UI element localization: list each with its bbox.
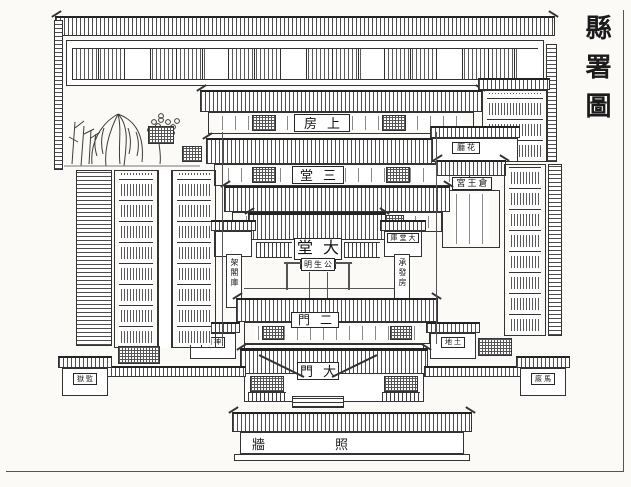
east-wing-outer-roof	[548, 164, 562, 336]
plaque-gongshengming-text: 明生公	[304, 261, 334, 269]
plaque-jail-text: 獄監	[77, 376, 95, 383]
plaque-east-shrine-text: 地土	[445, 339, 463, 346]
plaque-ermen-text: 門二	[298, 314, 342, 326]
damen-steps	[292, 396, 344, 408]
santang-window-right	[386, 167, 410, 183]
west-connecting-wall	[106, 366, 246, 377]
plaque-ermen: 門二	[291, 312, 339, 328]
bottom-frame-line	[6, 471, 624, 472]
plaque-east-shrine: 地土	[441, 337, 465, 348]
shangfang-window-right	[382, 115, 406, 131]
datangku-roof	[380, 220, 426, 231]
plaque-huating: 廳花	[452, 142, 480, 154]
east-connecting-wall	[424, 366, 522, 377]
plaque-datangku-text: 庫堂大	[391, 235, 418, 242]
jieshifang-post-left	[286, 262, 288, 290]
plaque-shangfang: 房上	[294, 114, 350, 132]
plaque-santang: 堂三	[292, 166, 344, 184]
damen-screen-right	[384, 376, 418, 392]
ermen-window-left	[262, 326, 284, 340]
santang-window-left	[252, 167, 276, 183]
plaque-cangwanggong-text: 宮王倉	[456, 179, 489, 188]
plaque-stable-text: 廄馬	[535, 376, 553, 383]
plaque-jail: 獄監	[73, 373, 97, 385]
datang-roof	[248, 212, 386, 240]
datang-railing-left	[256, 242, 292, 258]
right-frame-line	[623, 10, 624, 472]
west-wing-rooms-outer	[114, 170, 158, 348]
courtyard-wall-upper	[244, 288, 394, 289]
huating-roof	[430, 126, 520, 138]
plaque-huating-text: 廳花	[457, 144, 477, 152]
zhaoqiang-char-left: 牆	[252, 434, 265, 453]
west-wing-alley	[158, 170, 172, 348]
plaque-stable: 廄馬	[531, 373, 555, 385]
axis-wall-west	[222, 132, 223, 346]
east-wing-end-lattice	[478, 338, 512, 356]
damen-screen-left	[250, 376, 284, 392]
west-pavilion-roof	[210, 220, 256, 231]
damen-railing-right	[382, 392, 420, 402]
plaque-gongshengming: 明生公	[301, 258, 335, 271]
east-wing-rooms	[504, 164, 546, 336]
west-wing-outer-roof	[76, 170, 112, 346]
cangwanggong-roof	[436, 160, 506, 176]
plaque-datang-text: 堂大	[297, 241, 349, 257]
zhaoqiang-inscription: 牆 照	[252, 434, 348, 452]
plaque-santang-text: 堂三	[300, 169, 346, 182]
axis-wall-east	[436, 132, 437, 344]
zhaoqiang-char-right: 照	[335, 434, 348, 453]
plaque-shangfang-text: 房上	[304, 117, 350, 130]
ermen-window-right	[390, 326, 412, 340]
shangfang-window-left	[252, 115, 276, 131]
damen-railing-left	[248, 392, 286, 402]
west-wing-rooms-inner	[172, 170, 216, 348]
rear-perimeter-wall-roof	[55, 16, 555, 36]
zhaoqiang-roof	[232, 412, 472, 432]
garden-pavilion-lattice	[148, 126, 174, 144]
garden-side-lattice	[182, 146, 202, 162]
stable-roof	[516, 356, 570, 368]
county-office-map: 縣署圖 房上	[0, 0, 631, 487]
path-edge-left	[309, 272, 310, 300]
cangwanggong-body	[442, 190, 500, 248]
jieshifang-post-right	[348, 262, 350, 290]
plaque-datang: 堂大	[294, 238, 342, 260]
ertang-roof	[224, 186, 450, 212]
east-shrine-roof	[426, 322, 480, 333]
plaque-datangku: 庫堂大	[387, 233, 419, 243]
zhaoqiang-base	[234, 454, 470, 461]
plaque-cangwanggong: 宮王倉	[452, 177, 492, 190]
jail-roof	[58, 356, 112, 368]
page-title: 縣署圖	[579, 14, 615, 134]
east-upper-roof	[478, 78, 550, 90]
shangfang-roof	[200, 90, 482, 112]
datang-railing-right	[344, 242, 380, 258]
west-wing-end-lattice	[118, 346, 160, 364]
path-edge-right	[327, 272, 328, 300]
